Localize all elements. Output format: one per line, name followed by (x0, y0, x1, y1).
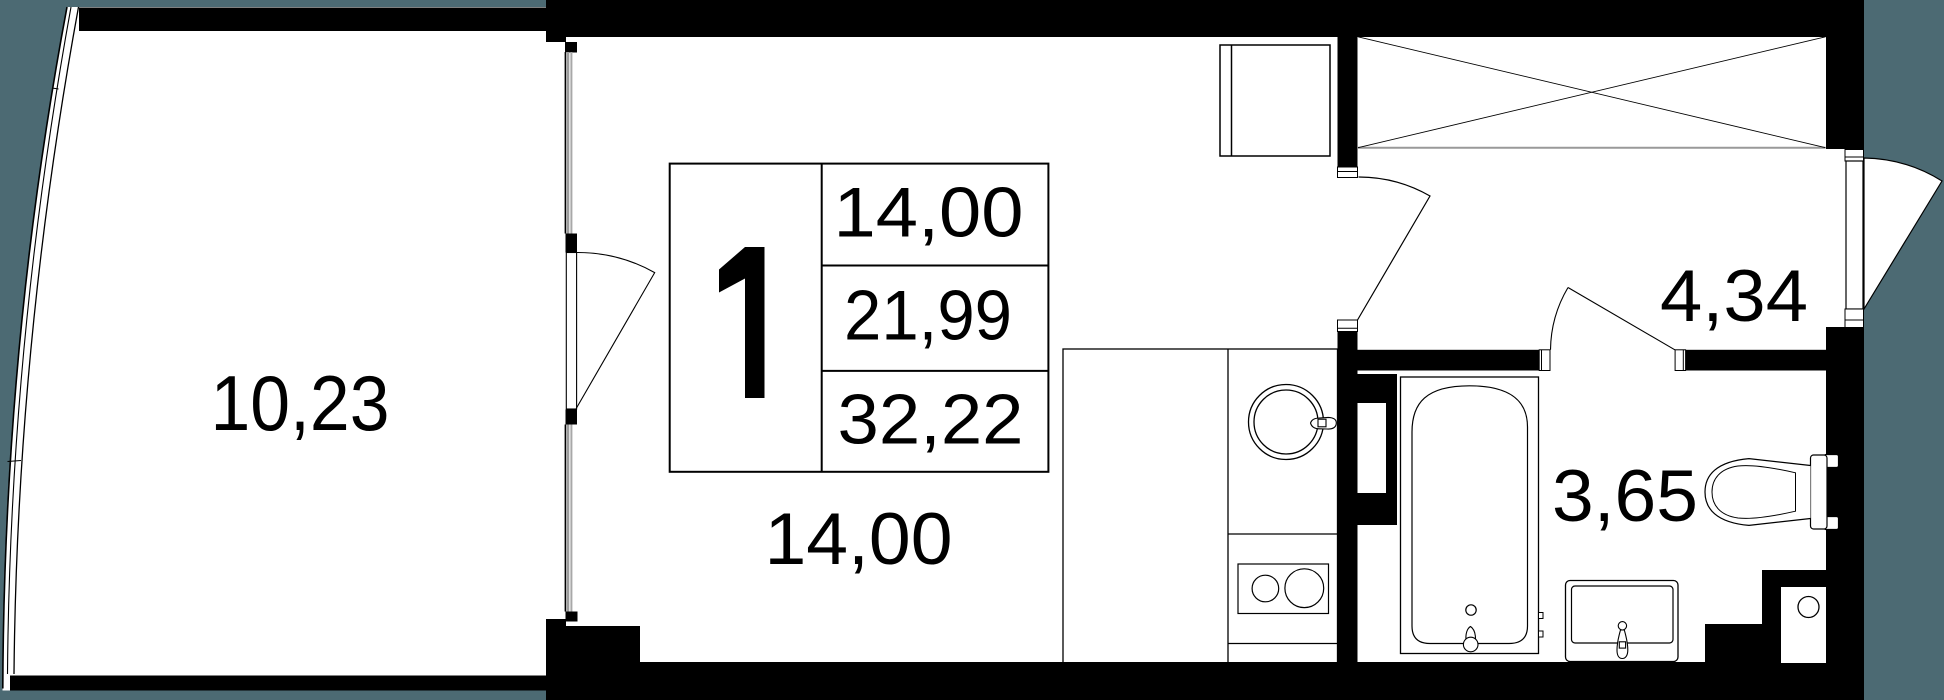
svg-text:4,34: 4,34 (1660, 256, 1808, 337)
svg-text:32,22: 32,22 (838, 380, 1024, 459)
svg-text:21,99: 21,99 (844, 276, 1012, 355)
svg-text:3,65: 3,65 (1552, 454, 1698, 537)
svg-text:14,00: 14,00 (765, 499, 953, 580)
svg-text:10,23: 10,23 (211, 359, 390, 447)
svg-text:14,00: 14,00 (834, 173, 1024, 252)
